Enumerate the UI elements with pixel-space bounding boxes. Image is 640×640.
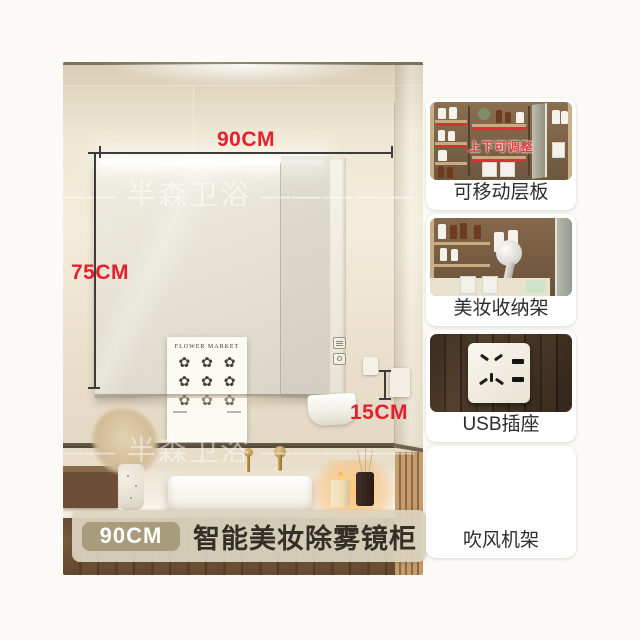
dimension-tick [379,370,391,372]
movable-shelf-photo: 上下可调整 [430,102,572,180]
dimension-tick [379,398,391,400]
light-power-icon [333,353,346,365]
makeup-rack-photo [430,218,572,296]
reflected-poster: FLOWER MARKET ✿✿✿✿✿✿✿✿✿ [167,337,247,442]
under-cabinet-glow [103,396,333,412]
adjustable-note: 上下可调整 [430,138,572,155]
light-switch [363,357,378,375]
usb-port [512,377,524,382]
storage-box [526,280,546,293]
footer-bar: 90CM 智能美妆除雾镜柜 [72,510,426,562]
reed-diffuser [356,472,374,506]
depth-dimension-label: 15CM [346,401,412,425]
width-dimension-line [100,152,392,154]
feature-card-movable-shelf: 上下可调整 可移动层板 [426,98,576,210]
usb-socket-photo [430,334,572,412]
light-switch [390,368,410,397]
flower-icon: ✿ [201,354,213,370]
flower-icon: ✿ [178,373,190,389]
diffuser-stick [365,448,366,472]
feature-label: USB插座 [430,412,572,438]
flower-icon: ✿ [201,373,213,389]
tile-seam [63,85,423,86]
mirror-door-edge [555,218,572,296]
poster-title: FLOWER MARKET [173,344,241,350]
dryer-rack-photo [430,450,572,528]
flower-icon: ✿ [224,354,236,370]
flower-icon: ✿ [178,354,190,370]
depth-dimension-line [384,371,386,400]
product-title: 智能美妆除雾镜柜 [193,517,417,556]
bathroom-photo: FLOWER MARKET ✿✿✿✿✿✿✿✿✿ [63,62,423,575]
usb-port [512,359,524,364]
socket-plate [468,343,530,403]
feature-label: 美妆收纳架 [430,296,572,322]
feature-label: 吹风机架 [430,528,572,554]
width-dimension-label: 90CM [100,128,392,152]
dimension-tick [88,152,100,154]
vase [118,464,144,510]
feature-label: 可移动层板 [430,180,572,206]
cove-light-glow [78,64,408,94]
floating-shelf [63,466,118,508]
candle [331,480,350,507]
feature-sidebar: 上下可调整 可移动层板 [426,98,576,558]
dimension-tick [88,387,100,389]
flower-icon: ✿ [224,373,236,389]
round-mirror [478,108,490,120]
right-mirror-door [281,156,330,398]
size-badge: 90CM [82,522,180,551]
hair-dryer [496,240,522,266]
faucet-handle [244,448,253,457]
product-image: FLOWER MARKET ✿✿✿✿✿✿✿✿✿ [0,0,640,640]
feature-card-usb-socket: USB插座 [426,330,576,442]
faucet-spout [274,446,286,458]
feature-card-dryer-rack: 吹风机架 [426,446,576,558]
defog-icon [333,337,346,349]
feature-card-makeup-rack: 美妆收纳架 [426,214,576,326]
height-dimension-label: 75CM [71,261,133,285]
